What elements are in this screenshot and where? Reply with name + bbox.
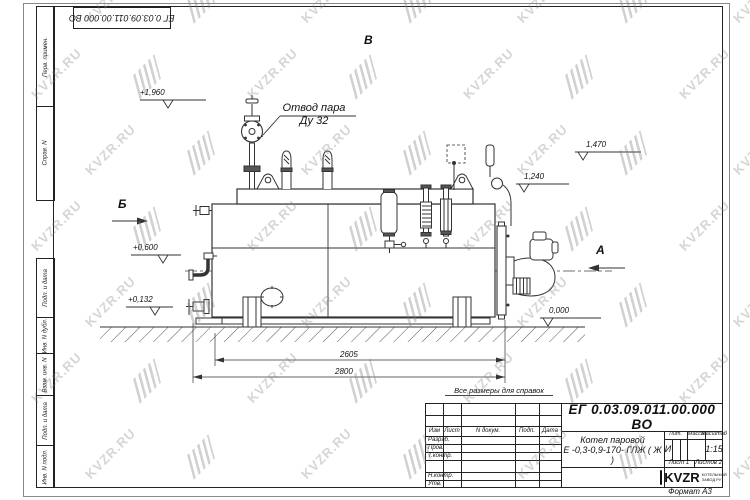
dimension-2605: 2605: [340, 350, 358, 359]
tb-row-nkontr: Н.контр.: [428, 472, 461, 480]
burner: [506, 232, 558, 296]
safety-valve: [281, 151, 292, 189]
view-label-v: В: [364, 33, 373, 47]
support-leg: [243, 297, 261, 327]
tb-sheets: Листов 2: [694, 460, 723, 467]
title-block: Изм Лист N докум. Подп. Дата Разраб. Про…: [425, 403, 723, 488]
format-label: Формат А3: [640, 487, 740, 496]
dimension-line-2605: [215, 358, 505, 363]
kvzr-logo-text: KVZR: [664, 471, 699, 485]
view-label-b: Б: [118, 197, 127, 211]
view-arrow-a: [588, 265, 625, 272]
steam-outlet-valve: [242, 95, 263, 189]
kvzr-logo-icon: [660, 470, 662, 485]
tb-doc-number: ЕГ 0.03.09.011.00.000 ВО: [563, 404, 721, 431]
tb-col-ndocum: N докум.: [461, 426, 515, 436]
tb-lit-value: И: [664, 439, 672, 460]
ground-hatch: [100, 327, 585, 342]
reference-note: Все размеры для справок: [445, 386, 553, 396]
boiler-top-platform: [237, 189, 473, 204]
skid-rail: [222, 318, 490, 324]
left-valve: [193, 205, 212, 216]
drawing-sheet: ЕГ 0.03.09.011.00.000 ВО Перв. примен. С…: [0, 0, 750, 500]
elevation-0000: 0,000: [549, 306, 569, 315]
lifting-lug: [257, 174, 279, 189]
dashed-outline: [447, 145, 465, 163]
support-leg: [453, 297, 471, 327]
callout-dn32: Ду 32: [284, 115, 344, 127]
tb-row-utv: Утв.: [428, 480, 461, 488]
tb-name-line2: Е -0,3-0,9-170- ГЛЖ ( Ж ): [563, 448, 662, 463]
tb-col-data: Дата: [539, 426, 561, 436]
tb-col-list: Лист: [443, 426, 461, 436]
tb-lit-label: Лит.: [664, 431, 687, 439]
view-arrow-b: [112, 218, 148, 225]
elevation-1960: +1,960: [140, 88, 165, 97]
dimension-2800: 2800: [335, 367, 353, 376]
drain-nozzle: [186, 299, 209, 315]
tb-scale-label: Масштаб: [705, 431, 723, 439]
tb-sheet: Лист 1: [664, 460, 694, 467]
tb-col-izm: Изм: [426, 426, 443, 436]
tb-row-razrab: Разраб.: [428, 436, 461, 444]
elevation-1240: 1,240: [524, 172, 544, 181]
view-label-a: А: [596, 243, 605, 257]
tb-logo-cell: KVZR КОТЕЛЬНЫЙ ЗАВОД.РУ: [664, 467, 723, 488]
elevation-0132: +0,132: [128, 295, 153, 304]
tb-col-podp: Подп.: [515, 426, 539, 436]
safety-valve: [322, 151, 333, 189]
kvzr-logo-sub2: ЗАВОД.РУ: [702, 478, 722, 482]
callout-steam-outlet: Отвод пара: [272, 102, 356, 114]
elevation-0600: +0,600: [133, 243, 158, 252]
tb-row-tkontr: Т.контр.: [428, 452, 461, 460]
tb-scale-value: 1:15: [705, 439, 723, 460]
tb-row-prov: Пров.: [428, 444, 461, 452]
elevation-1470: 1,470: [586, 140, 606, 149]
